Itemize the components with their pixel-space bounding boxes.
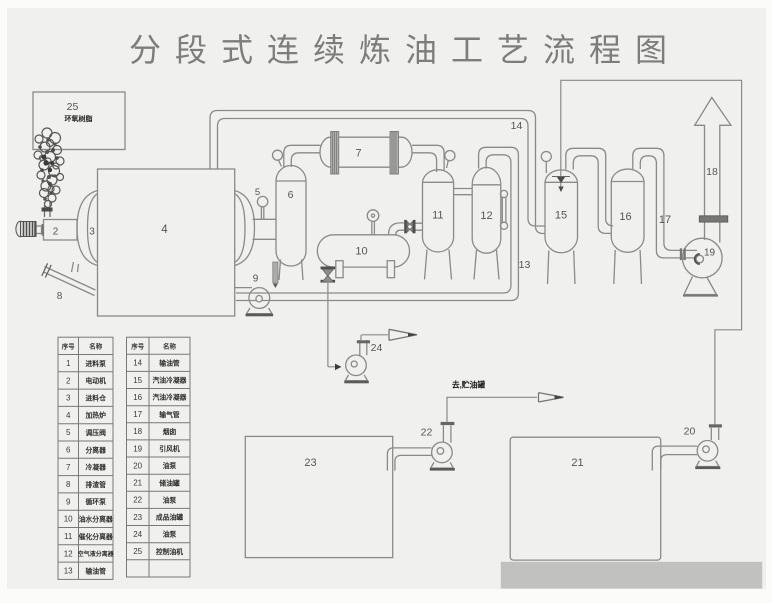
svg-text:2: 2 <box>66 376 71 385</box>
svg-text:引风机: 引风机 <box>159 444 180 453</box>
svg-text:13: 13 <box>64 567 73 576</box>
svg-text:19: 19 <box>133 444 142 453</box>
svg-text:8: 8 <box>57 291 63 302</box>
svg-text:9: 9 <box>66 497 71 506</box>
svg-text:18: 18 <box>133 427 142 436</box>
svg-text:序号: 序号 <box>61 342 76 351</box>
svg-text:18: 18 <box>706 166 718 178</box>
svg-text:14: 14 <box>511 120 523 132</box>
svg-text:烟囱: 烟囱 <box>163 427 177 436</box>
svg-text:24: 24 <box>133 530 142 539</box>
svg-text:3: 3 <box>89 227 95 238</box>
svg-text:冷凝器: 冷凝器 <box>86 463 107 472</box>
svg-text:16: 16 <box>133 393 142 402</box>
svg-text:2: 2 <box>53 227 59 238</box>
svg-text:4: 4 <box>66 411 71 420</box>
svg-text:5: 5 <box>66 428 71 437</box>
svg-text:10: 10 <box>355 246 367 258</box>
svg-text:6: 6 <box>66 446 71 455</box>
svg-text:22: 22 <box>133 496 142 505</box>
svg-text:环氧树脂: 环氧树脂 <box>65 114 93 123</box>
svg-text:10: 10 <box>64 515 73 524</box>
svg-text:21: 21 <box>571 457 583 469</box>
svg-text:去,贮油罐: 去,贮油罐 <box>452 380 486 390</box>
svg-text:汽油冷凝器: 汽油冷凝器 <box>153 393 187 402</box>
svg-text:控制油机: 控制油机 <box>156 547 183 556</box>
svg-text:油泵: 油泵 <box>163 496 177 505</box>
svg-text:成品油罐: 成品油罐 <box>156 513 183 522</box>
svg-text:序号: 序号 <box>130 341 145 350</box>
svg-text:12: 12 <box>64 549 73 558</box>
svg-text:17: 17 <box>133 410 142 419</box>
svg-text:储油罐: 储油罐 <box>158 478 180 487</box>
svg-text:分段式连续炼油工艺流程图: 分段式连续炼油工艺流程图 <box>129 32 681 68</box>
svg-text:空气液分离器: 空气液分离器 <box>78 550 115 558</box>
svg-text:20: 20 <box>133 461 142 470</box>
svg-text:7: 7 <box>66 463 71 472</box>
svg-text:排渣管: 排渣管 <box>86 480 107 489</box>
svg-text:名称: 名称 <box>89 342 103 351</box>
svg-text:加热炉: 加热炉 <box>85 411 107 420</box>
svg-text:4: 4 <box>161 224 168 236</box>
svg-text:8: 8 <box>66 480 71 489</box>
svg-text:20: 20 <box>684 426 696 438</box>
svg-text:油泵: 油泵 <box>163 461 177 470</box>
svg-text:24: 24 <box>371 342 383 354</box>
svg-text:油泵: 油泵 <box>163 530 177 539</box>
svg-text:6: 6 <box>288 189 294 201</box>
svg-text:21: 21 <box>133 479 142 488</box>
svg-text:9: 9 <box>253 274 259 285</box>
svg-text:电动机: 电动机 <box>86 376 107 385</box>
svg-text:名称: 名称 <box>163 341 177 350</box>
svg-text:油水分离器: 油水分离器 <box>79 515 113 524</box>
svg-text:25: 25 <box>67 101 79 113</box>
svg-text:14: 14 <box>133 359 142 368</box>
svg-text:12: 12 <box>480 210 492 222</box>
svg-text:15: 15 <box>133 376 142 385</box>
svg-text:22: 22 <box>421 427 433 439</box>
svg-text:输气管: 输气管 <box>159 410 180 419</box>
svg-text:25: 25 <box>133 547 142 556</box>
svg-text:催化分离器: 催化分离器 <box>79 532 113 541</box>
svg-text:调压阀: 调压阀 <box>86 428 107 437</box>
svg-text:7: 7 <box>355 148 361 160</box>
svg-text:3: 3 <box>66 394 71 403</box>
svg-text:13: 13 <box>519 259 531 271</box>
svg-text:输油管: 输油管 <box>159 359 180 368</box>
svg-text:23: 23 <box>304 457 316 469</box>
svg-text:5: 5 <box>255 187 260 198</box>
svg-text:11: 11 <box>432 210 443 222</box>
svg-text:23: 23 <box>133 513 142 522</box>
svg-text:进料泵: 进料泵 <box>86 359 107 368</box>
svg-text:16: 16 <box>619 211 631 223</box>
svg-text:进料仓: 进料仓 <box>86 393 107 402</box>
svg-text:1: 1 <box>66 359 71 368</box>
svg-text:17: 17 <box>659 214 671 226</box>
svg-text:15: 15 <box>555 210 567 222</box>
svg-text:11: 11 <box>64 532 73 541</box>
svg-text:循环泵: 循环泵 <box>86 497 107 506</box>
svg-text:19: 19 <box>704 248 716 259</box>
svg-text:输油管: 输油管 <box>86 566 107 575</box>
svg-text:分离器: 分离器 <box>86 445 107 454</box>
svg-text:汽油冷凝器: 汽油冷凝器 <box>153 376 187 385</box>
